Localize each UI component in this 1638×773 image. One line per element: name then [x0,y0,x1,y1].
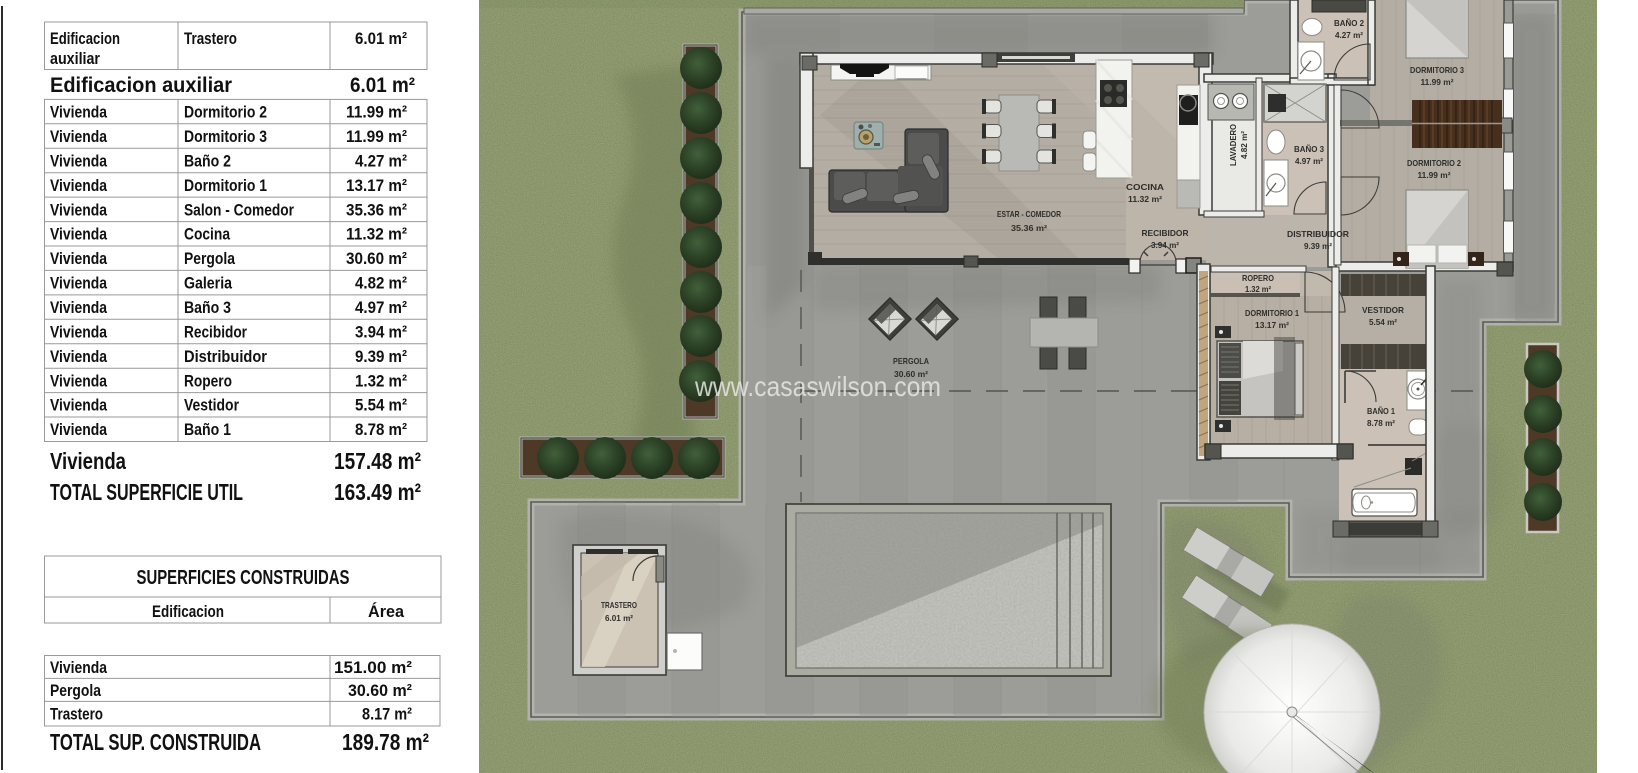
svg-text:151.00 m²: 151.00 m² [334,658,412,677]
svg-text:4.82 m²: 4.82 m² [355,274,407,293]
svg-text:1.32 m²: 1.32 m² [1245,285,1271,294]
svg-text:189.78 m²: 189.78 m² [342,729,429,755]
svg-text:9.39 m²: 9.39 m² [1304,242,1332,251]
svg-text:Vivienda: Vivienda [50,225,107,244]
svg-text:3.94 m²: 3.94 m² [355,322,407,341]
svg-text:Cocina: Cocina [184,225,230,244]
svg-text:1.32 m²: 1.32 m² [355,371,407,390]
svg-text:Vivienda: Vivienda [50,371,107,390]
svg-text:Edificacion: Edificacion [50,29,120,48]
svg-text:DORMITORIO 1: DORMITORIO 1 [1245,309,1299,318]
svg-text:DISTRIBUIDOR: DISTRIBUIDOR [1287,230,1349,239]
svg-text:BAÑO 3: BAÑO 3 [1294,144,1324,154]
svg-text:Vivienda: Vivienda [50,322,107,341]
svg-text:DORMITORIO 3: DORMITORIO 3 [1410,66,1464,75]
svg-text:8.78 m²: 8.78 m² [1367,419,1395,428]
svg-text:Vivienda: Vivienda [50,274,107,293]
svg-text:Vivienda: Vivienda [50,176,107,195]
svg-text:4.97 m²: 4.97 m² [1295,157,1323,166]
svg-text:Edificacion auxiliar: Edificacion auxiliar [50,74,232,97]
svg-text:Baño 2: Baño 2 [184,151,231,170]
svg-text:auxiliar: auxiliar [50,49,100,68]
svg-text:Baño 3: Baño 3 [184,298,231,317]
svg-text:6.01 m²: 6.01 m² [355,29,407,48]
svg-text:DORMITORIO 2: DORMITORIO 2 [1407,159,1461,168]
svg-text:Baño 1: Baño 1 [184,420,231,439]
svg-text:Dormitorio 1: Dormitorio 1 [184,176,267,195]
svg-text:Vivienda: Vivienda [50,249,107,268]
svg-text:4.27 m²: 4.27 m² [1335,31,1363,40]
svg-text:LAVADERO: LAVADERO [1229,123,1238,166]
svg-text:Vivienda: Vivienda [50,347,107,366]
svg-text:BAÑO 1: BAÑO 1 [1367,406,1395,416]
svg-text:35.36 m²: 35.36 m² [346,200,407,219]
svg-text:Vivienda: Vivienda [50,127,107,146]
svg-text:Edificacion: Edificacion [152,602,224,621]
svg-text:Salon - Comedor: Salon - Comedor [184,200,294,219]
svg-text:5.54 m²: 5.54 m² [355,396,407,415]
svg-text:11.99 m²: 11.99 m² [346,127,407,146]
svg-text:5.54 m²: 5.54 m² [1369,318,1397,327]
svg-text:Vestidor: Vestidor [184,396,239,415]
svg-text:30.60 m²: 30.60 m² [348,681,412,700]
svg-text:Dormitorio 3: Dormitorio 3 [184,127,267,146]
svg-text:6.01 m²: 6.01 m² [605,613,633,623]
svg-text:11.99 m²: 11.99 m² [1418,171,1451,180]
svg-text:4.82 m²: 4.82 m² [1240,131,1249,159]
svg-text:Vivienda: Vivienda [50,396,107,415]
svg-text:VESTIDOR: VESTIDOR [1362,306,1404,315]
svg-text:11.99 m²: 11.99 m² [1421,78,1454,87]
svg-text:Vivienda: Vivienda [50,200,107,219]
svg-text:9.39 m²: 9.39 m² [355,347,407,366]
svg-text:ESTAR - COMEDOR: ESTAR - COMEDOR [997,210,1061,219]
svg-text:3.94 m²: 3.94 m² [1151,241,1179,250]
svg-text:Vivienda: Vivienda [50,298,107,317]
svg-text:11.99 m²: 11.99 m² [346,103,407,122]
svg-text:4.27 m²: 4.27 m² [355,151,407,170]
svg-text:6.01 m²: 6.01 m² [350,74,415,97]
svg-text:Recibidor: Recibidor [184,322,247,341]
svg-text:Galeria: Galeria [184,274,232,293]
svg-text:35.36 m²: 35.36 m² [1011,224,1047,233]
svg-text:Distribuidor: Distribuidor [184,347,267,366]
svg-text:SUPERFICIES CONSTRUIDAS: SUPERFICIES CONSTRUIDAS [137,567,350,589]
svg-text:4.97 m²: 4.97 m² [355,298,407,317]
svg-text:30.60 m²: 30.60 m² [346,249,407,268]
svg-text:Ropero: Ropero [184,371,232,390]
svg-text:Vivienda: Vivienda [50,103,107,122]
svg-text:8.17 m²: 8.17 m² [362,705,412,724]
svg-text:Dormitorio 2: Dormitorio 2 [184,103,267,122]
svg-text:BAÑO 2: BAÑO 2 [1334,18,1364,28]
svg-text:ROPERO: ROPERO [1242,274,1275,283]
svg-text:www.casaswilson.com: www.casaswilson.com [694,371,941,402]
svg-text:157.48 m²: 157.48 m² [334,448,421,474]
svg-text:RECIBIDOR: RECIBIDOR [1142,229,1189,238]
svg-text:PERGOLA: PERGOLA [893,357,929,366]
svg-text:Vivienda: Vivienda [50,658,107,677]
svg-text:Pergola: Pergola [50,681,101,700]
svg-text:Área: Área [368,602,405,621]
svg-text:Vivienda: Vivienda [50,448,126,474]
svg-text:163.49 m²: 163.49 m² [334,479,421,505]
svg-text:TRASTERO: TRASTERO [601,600,637,610]
svg-text:Trastero: Trastero [184,29,237,48]
svg-text:Vivienda: Vivienda [50,151,107,170]
svg-text:COCINA: COCINA [1126,183,1164,192]
svg-text:11.32 m²: 11.32 m² [346,225,407,244]
svg-text:TOTAL SUPERFICIE UTIL: TOTAL SUPERFICIE UTIL [50,479,243,505]
svg-text:Trastero: Trastero [50,705,103,724]
svg-text:TOTAL SUP. CONSTRUIDA: TOTAL SUP. CONSTRUIDA [50,729,261,755]
svg-text:8.78 m²: 8.78 m² [355,420,407,439]
svg-text:11.32 m²: 11.32 m² [1128,195,1162,204]
svg-text:Vivienda: Vivienda [50,420,107,439]
svg-text:13.17 m²: 13.17 m² [1255,321,1289,330]
svg-text:Pergola: Pergola [184,249,235,268]
svg-text:13.17 m²: 13.17 m² [346,176,407,195]
